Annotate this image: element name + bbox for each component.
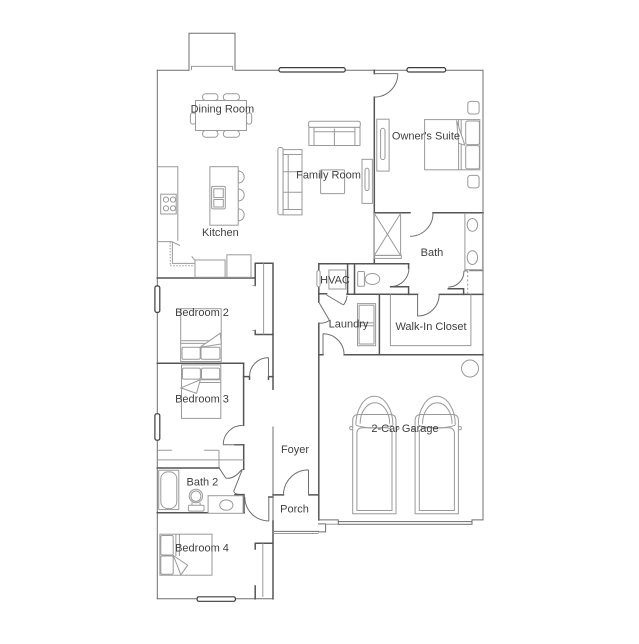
svg-text:Bedroom 2: Bedroom 2 (175, 307, 229, 319)
svg-text:Walk-In Closet: Walk-In Closet (395, 321, 466, 333)
svg-text:Kitchen: Kitchen (202, 227, 239, 239)
svg-text:HVAC: HVAC (320, 274, 350, 286)
svg-text:Laundry: Laundry (329, 318, 369, 330)
svg-text:Foyer: Foyer (281, 444, 309, 456)
svg-text:Porch: Porch (280, 503, 309, 515)
svg-text:Owner's Suite: Owner's Suite (392, 130, 460, 142)
svg-text:2-Car Garage: 2-Car Garage (371, 423, 438, 435)
svg-text:Bath: Bath (421, 247, 444, 259)
svg-text:Bedroom 3: Bedroom 3 (175, 393, 229, 405)
svg-text:Bath 2: Bath 2 (186, 477, 218, 489)
svg-text:Dining Room: Dining Room (191, 104, 255, 116)
svg-text:Bedroom 4: Bedroom 4 (175, 542, 229, 554)
svg-text:Family Room: Family Room (296, 170, 361, 182)
